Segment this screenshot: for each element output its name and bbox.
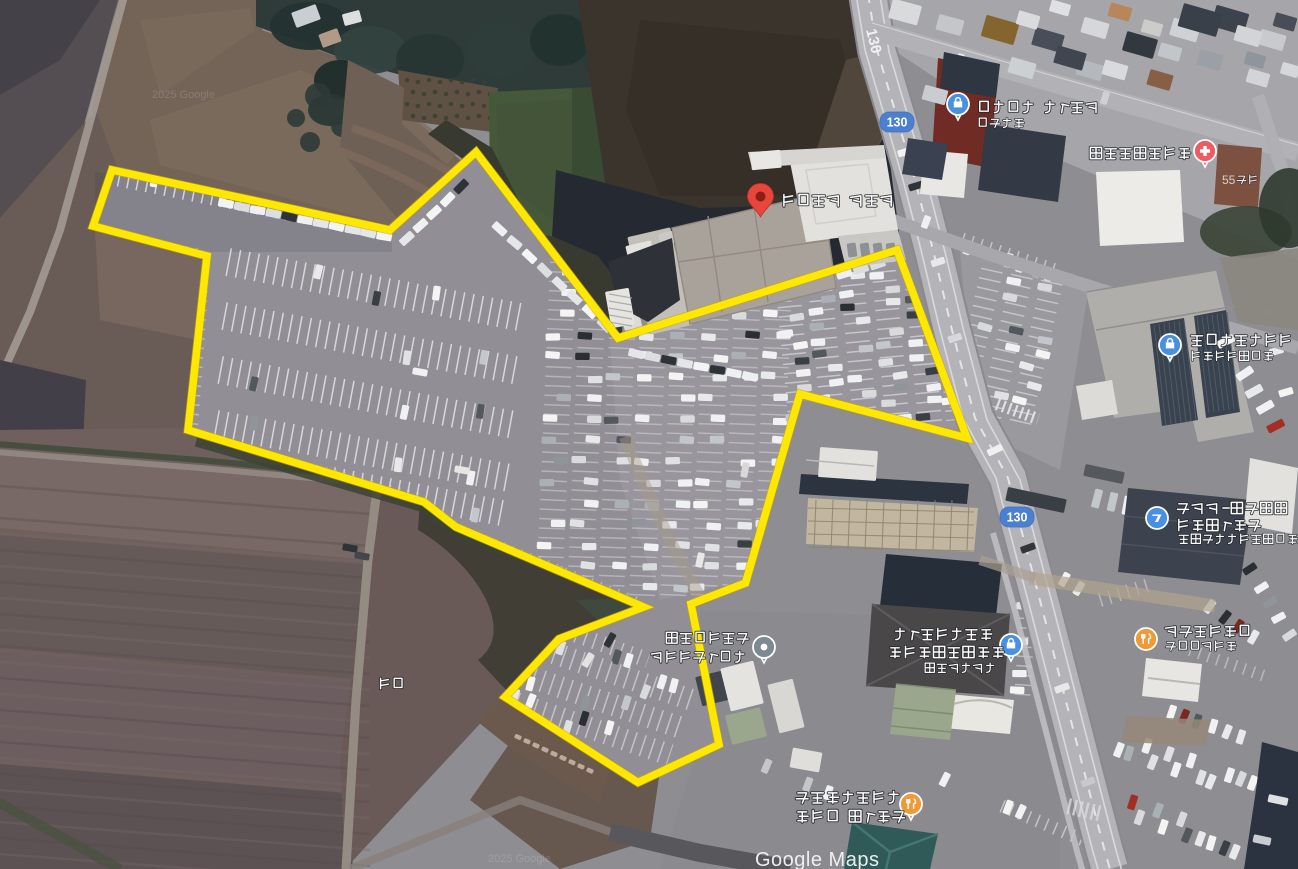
svg-text:Google Maps: Google Maps [755, 849, 879, 869]
svg-text:2025 Google: 2025 Google [152, 89, 215, 101]
svg-text:2025 Google: 2025 Google [488, 853, 551, 865]
svg-text:130: 130 [1007, 511, 1028, 525]
svg-text:130: 130 [887, 116, 908, 130]
svg-text:55: 55 [1222, 173, 1236, 187]
